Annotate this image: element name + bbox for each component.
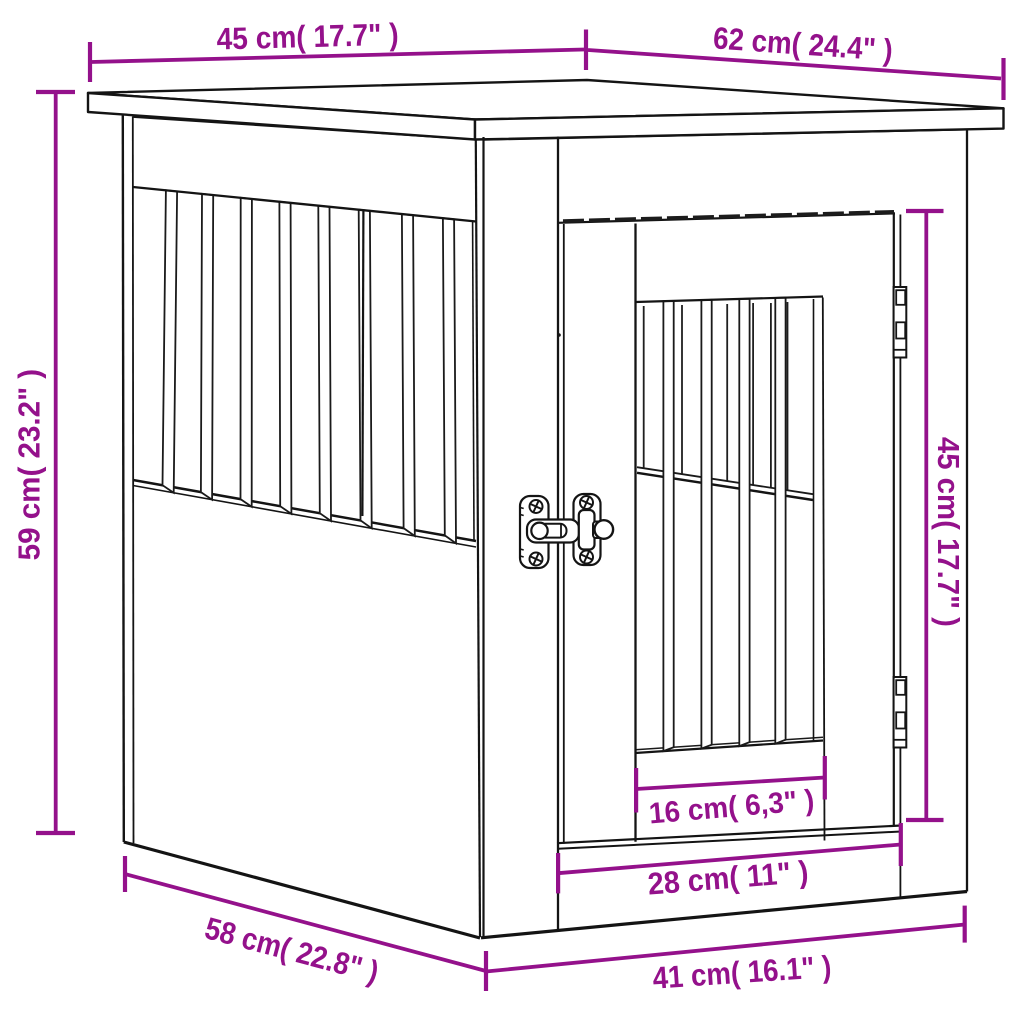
svg-text:45 cm( 17.7" ): 45 cm( 17.7" ) bbox=[216, 17, 399, 57]
svg-text:59 cm( 23.2" ): 59 cm( 23.2" ) bbox=[11, 369, 46, 560]
svg-text:45 cm( 17.7" ): 45 cm( 17.7" ) bbox=[931, 437, 966, 627]
